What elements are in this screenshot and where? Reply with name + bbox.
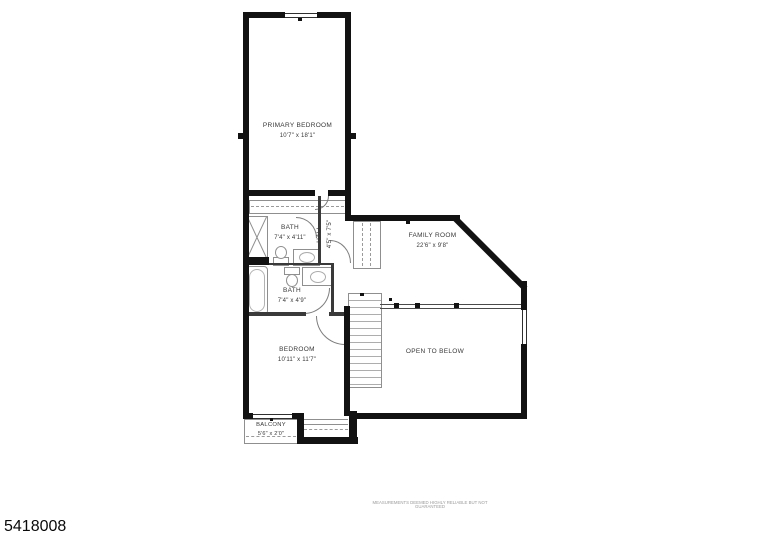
- wall-segment: [243, 257, 269, 265]
- railing: [380, 304, 521, 309]
- room-name: HALL: [314, 204, 325, 264]
- sink-basin: [299, 252, 315, 263]
- wall-tick: [406, 221, 410, 224]
- wall-tick: [351, 133, 356, 139]
- room-dims: 4'5" x 7'5": [325, 204, 335, 264]
- bathtub-inner: [249, 269, 265, 312]
- room-dims: 22'6" x 9'8": [385, 241, 480, 251]
- wall-segment: [243, 12, 249, 419]
- wall-segment: [521, 281, 527, 310]
- room-dims: 7'4" x 4'11": [265, 233, 315, 243]
- room-name: FAMILY ROOM: [385, 230, 480, 241]
- room-name: BALCONY: [247, 421, 295, 430]
- closet-rod: [370, 223, 371, 266]
- room-name: OPEN TO BELOW: [390, 346, 480, 357]
- stair-arrow: [360, 293, 364, 296]
- room-dims: 5'6" x 2'0": [247, 430, 295, 439]
- room-label-bath-lower: BATH 7'4" x 4'9": [267, 285, 317, 306]
- wall-segment: [243, 190, 315, 196]
- room-dims: 7'4" x 4'9": [267, 296, 317, 306]
- wall-segment: [521, 344, 527, 419]
- room-name: BEDROOM: [252, 344, 342, 355]
- wall-segment: [350, 413, 527, 419]
- closet-rod: [362, 223, 363, 266]
- wall-segment: [243, 12, 285, 18]
- railing-post: [454, 303, 459, 308]
- floor-plan: PRIMARY BEDROOM 10'7" x 18'1" BATH 7'4" …: [0, 0, 768, 542]
- staircase: [348, 293, 382, 388]
- door-arc: [316, 316, 345, 345]
- wall-segment: [344, 306, 350, 416]
- bathtub: [246, 266, 268, 315]
- wall-segment: [349, 411, 357, 444]
- wall-segment: [345, 12, 351, 196]
- window: [522, 310, 527, 344]
- wall-segment: [243, 413, 253, 419]
- room-label-bedroom: BEDROOM 10'11" x 11'7": [252, 344, 342, 365]
- room-name: BATH: [267, 285, 317, 296]
- wall-segment: [345, 215, 460, 221]
- wall-tick: [238, 133, 243, 139]
- wall-segment: [331, 263, 334, 312]
- railing-post: [394, 303, 399, 308]
- listing-id: 5418008: [4, 518, 66, 536]
- room-label-family-room: FAMILY ROOM 22'6" x 9'8": [385, 230, 480, 251]
- room-label-balcony: BALCONY 5'6" x 2'0": [247, 421, 295, 439]
- wall-tick: [298, 18, 302, 21]
- room-dims: 10'7" x 18'1": [250, 131, 345, 141]
- sink-vanity: [302, 267, 332, 286]
- room-name: PRIMARY BEDROOM: [250, 120, 345, 131]
- room-name: BATH: [265, 222, 315, 233]
- wall-tick: [389, 298, 392, 301]
- angled-wall: [452, 215, 528, 291]
- railing-post: [415, 303, 420, 308]
- room-label-bath-upper: BATH 7'4" x 4'11": [265, 222, 315, 243]
- toilet-fixture: [275, 246, 287, 259]
- bumpout-lines: [304, 419, 348, 425]
- wall-segment: [246, 312, 306, 316]
- room-label-primary-bedroom: PRIMARY BEDROOM 10'7" x 18'1": [250, 120, 345, 141]
- closet: [353, 221, 381, 269]
- disclaimer-text: MEASUREMENTS DEEMED HIGHLY RELIABLE BUT …: [358, 501, 502, 510]
- bumpout-dashed-line: [304, 429, 348, 430]
- room-label-open-to-below: OPEN TO BELOW: [390, 346, 480, 357]
- sink-basin: [310, 271, 326, 283]
- room-label-hall: HALL 4'5" x 7'5": [314, 204, 340, 264]
- room-dims: 10'11" x 11'7": [252, 355, 342, 365]
